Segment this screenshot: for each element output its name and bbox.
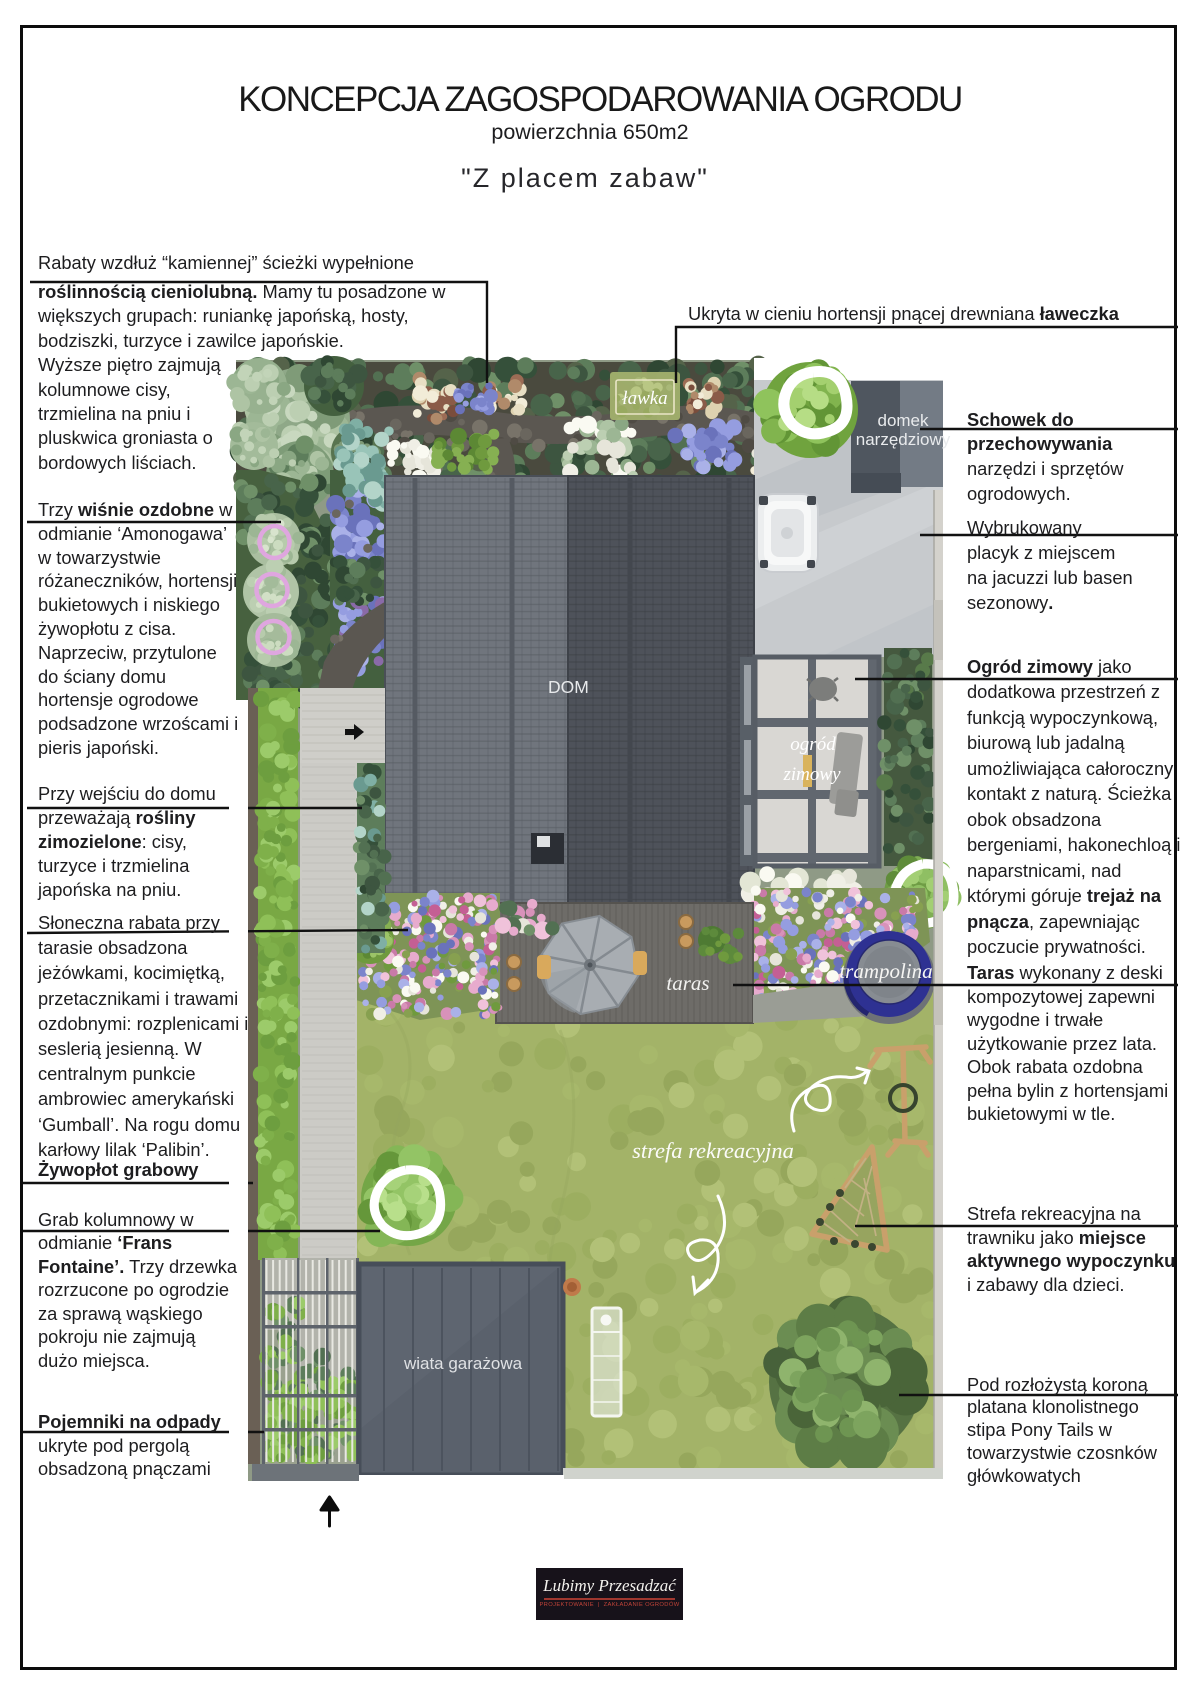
svg-text:domek: domek <box>877 411 929 430</box>
svg-text:DOM: DOM <box>548 677 589 697</box>
svg-text:taras: taras <box>666 971 709 995</box>
svg-text:ogród: ogród <box>790 734 836 755</box>
svg-text:ławka: ławka <box>622 388 667 409</box>
svg-text:trampolina: trampolina <box>839 959 932 983</box>
svg-text:strefa rekreacyjna: strefa rekreacyjna <box>632 1138 794 1163</box>
svg-text:wiata garażowa: wiata garażowa <box>403 1354 523 1373</box>
svg-text:zimowy: zimowy <box>783 764 842 785</box>
svg-text:narzędziowy: narzędziowy <box>856 430 951 449</box>
